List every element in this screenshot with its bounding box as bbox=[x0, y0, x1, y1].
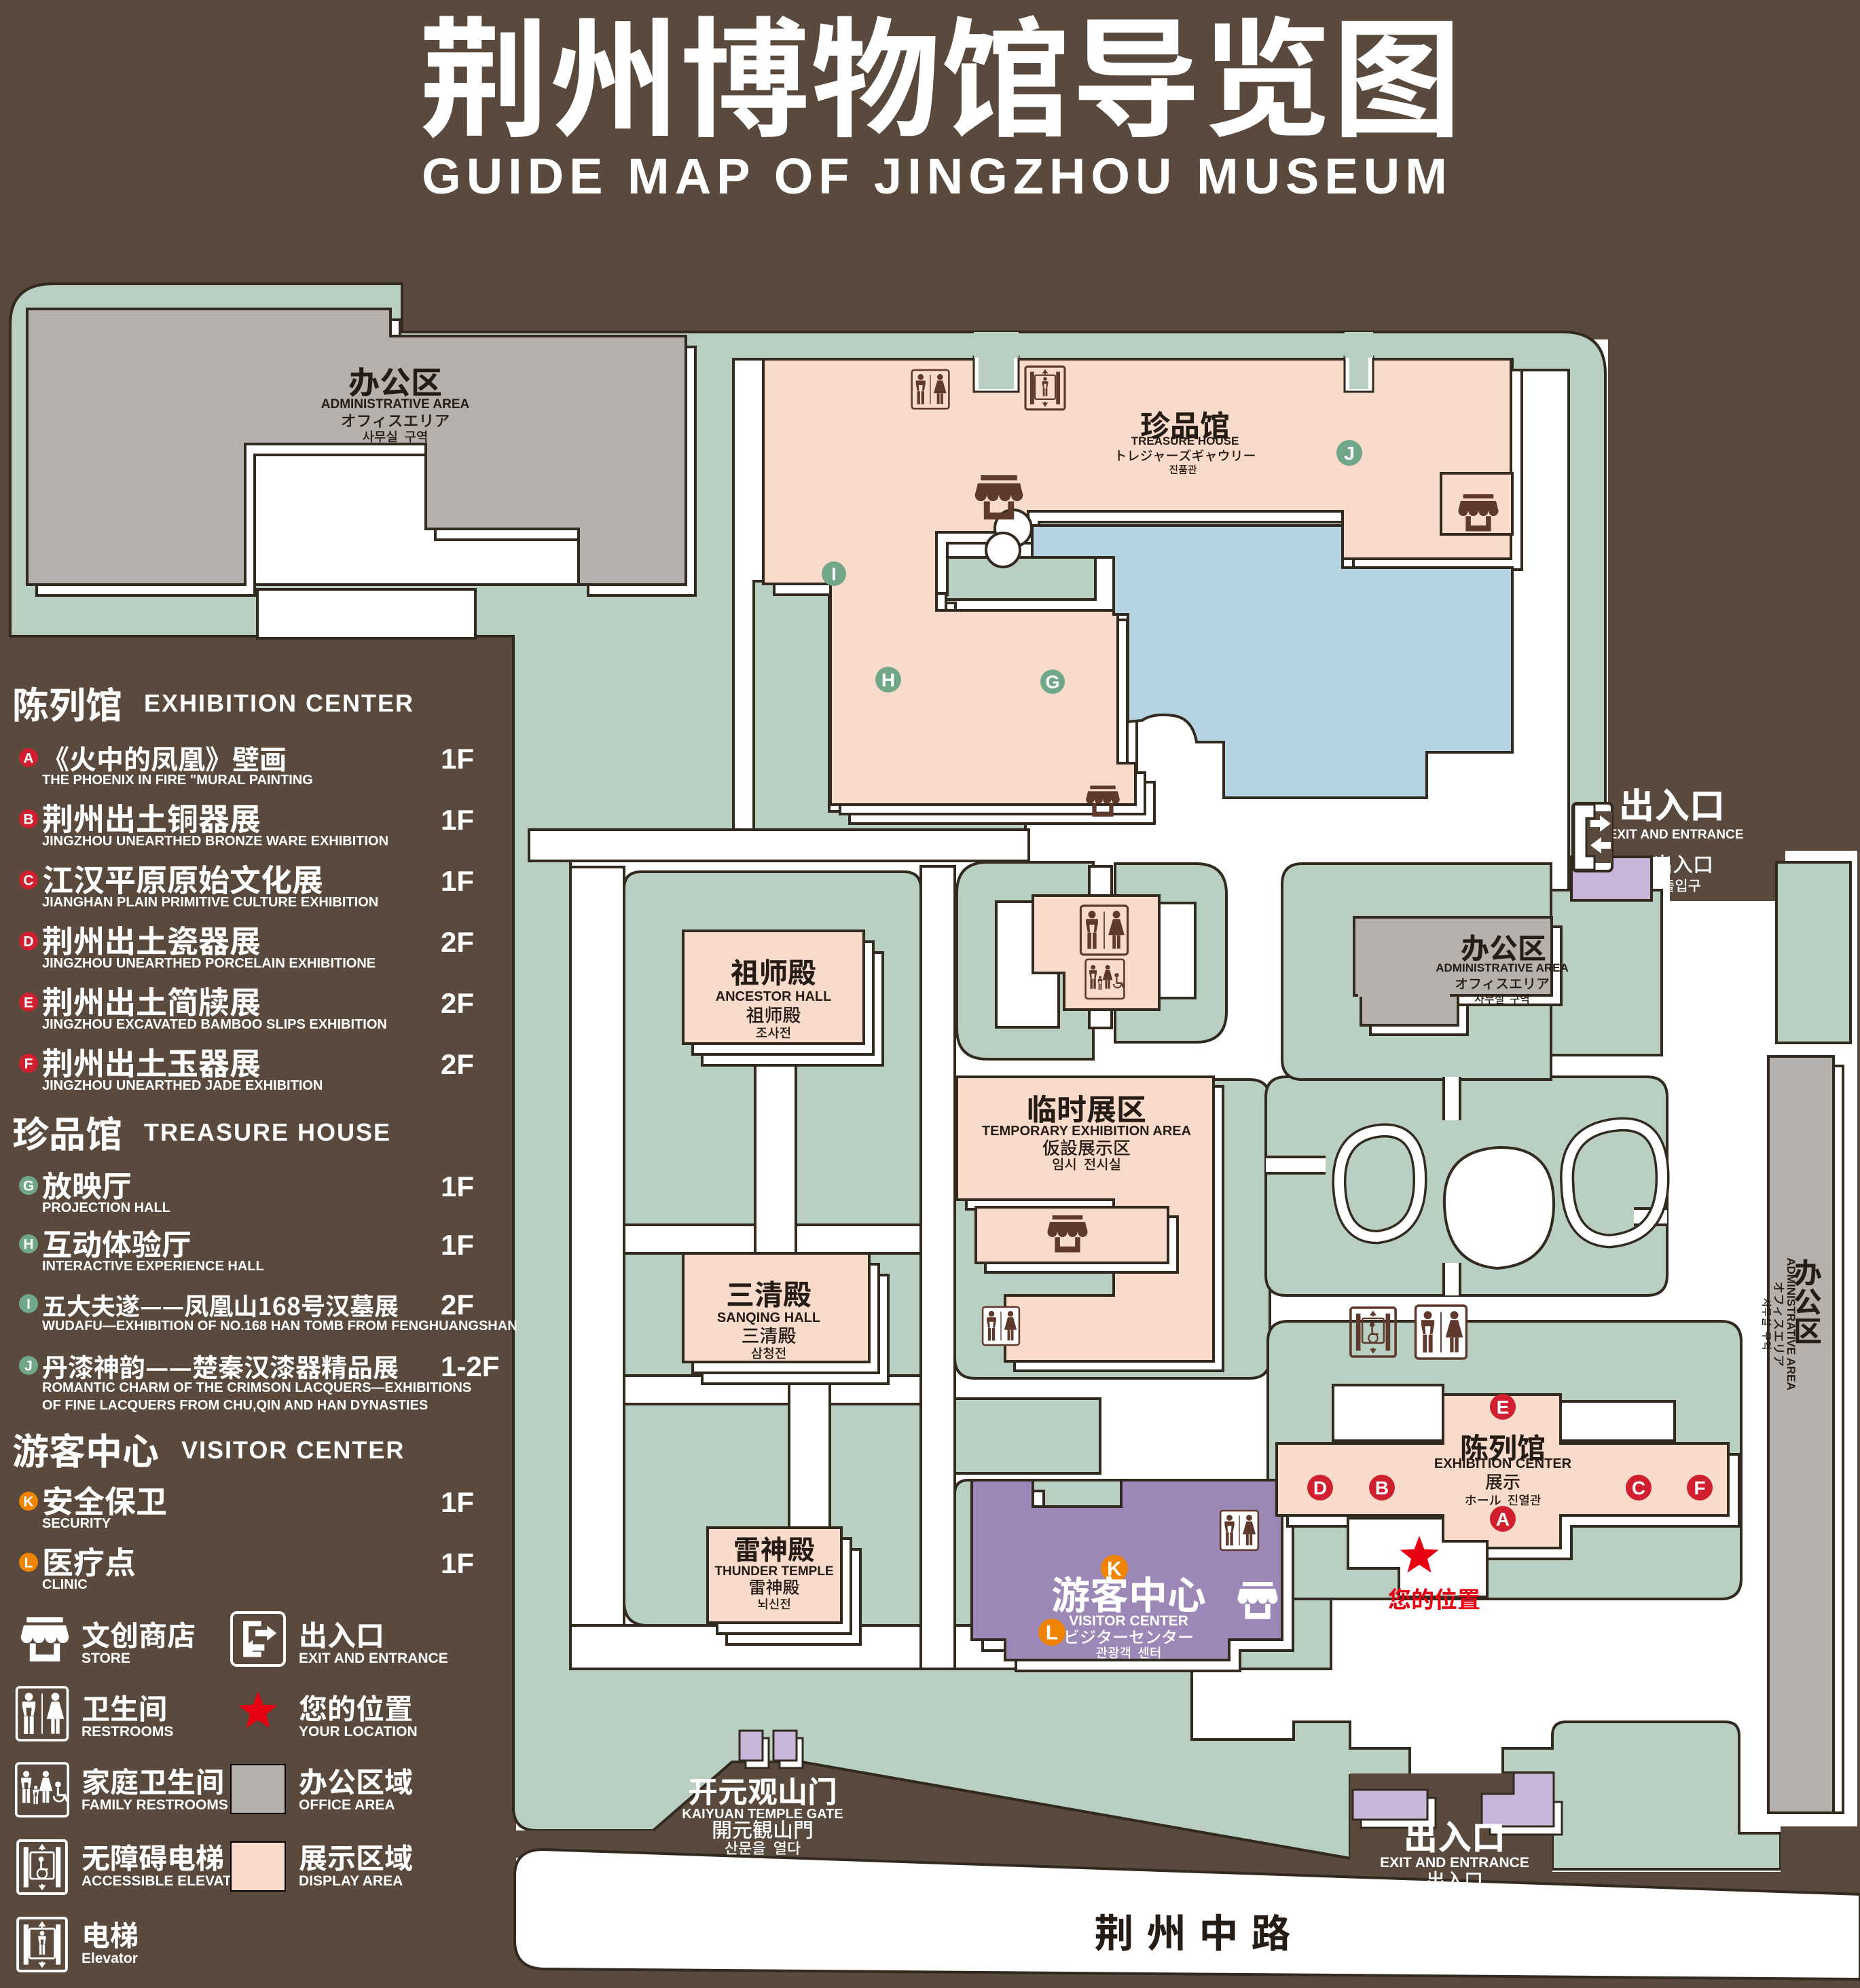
svg-text:I: I bbox=[26, 1296, 31, 1312]
svg-text:TREASURE HOUSE: TREASURE HOUSE bbox=[1131, 435, 1239, 447]
svg-text:FAMILY RESTROOMS: FAMILY RESTROOMS bbox=[81, 1797, 228, 1813]
svg-text:1F: 1F bbox=[441, 1171, 474, 1202]
svg-text:SANQING HALL: SANQING HALL bbox=[717, 1310, 820, 1325]
svg-text:CLINIC: CLINIC bbox=[42, 1577, 88, 1592]
svg-text:EXIT AND ENTRANCE: EXIT AND ENTRANCE bbox=[299, 1651, 448, 1666]
svg-text:ADMINISTRATIVE AREA: ADMINISTRATIVE AREA bbox=[321, 397, 470, 411]
svg-text:JINGZHOU UNEARTHED PORCELAIN E: JINGZHOU UNEARTHED PORCELAIN EXHIBITIONE bbox=[42, 956, 376, 971]
svg-text:EXIT AND ENTRANCE: EXIT AND ENTRANCE bbox=[1609, 828, 1744, 842]
svg-text:G: G bbox=[23, 1178, 34, 1194]
svg-text:SECURITY: SECURITY bbox=[42, 1516, 111, 1531]
svg-text:2F: 2F bbox=[441, 1289, 474, 1321]
svg-text:F: F bbox=[1694, 1477, 1705, 1498]
svg-text:I: I bbox=[831, 564, 837, 584]
svg-text:OF FINE LACQUERS FROM CHU,QIN: OF FINE LACQUERS FROM CHU,QIN AND HAN DY… bbox=[42, 1398, 428, 1413]
svg-text:D: D bbox=[23, 934, 33, 949]
svg-text:VISITOR CENTER: VISITOR CENTER bbox=[1069, 1613, 1188, 1629]
svg-text:YOUR LOCATION: YOUR LOCATION bbox=[299, 1724, 418, 1739]
svg-text:EXIT AND ENTRANCE: EXIT AND ENTRANCE bbox=[1380, 1855, 1529, 1871]
svg-text:ACCESSIBLE ELEVATOR: ACCESSIBLE ELEVATOR bbox=[81, 1873, 253, 1889]
svg-text:EXHIBITION CENTER: EXHIBITION CENTER bbox=[1434, 1456, 1572, 1471]
svg-text:C: C bbox=[1632, 1477, 1645, 1498]
svg-text:ADMINISTRATIVE AREA: ADMINISTRATIVE AREA bbox=[1785, 1257, 1798, 1391]
svg-text:WUDAFU—EXHIBITION OF NO.168 HA: WUDAFU—EXHIBITION OF NO.168 HAN TOMB FRO… bbox=[42, 1319, 517, 1333]
svg-text:E: E bbox=[24, 995, 33, 1010]
svg-text:1F: 1F bbox=[441, 743, 474, 775]
svg-text:VISITOR CENTER: VISITOR CENTER bbox=[181, 1436, 405, 1464]
svg-text:1F: 1F bbox=[441, 1547, 474, 1579]
svg-text:1-2F: 1-2F bbox=[441, 1350, 499, 1382]
svg-text:K: K bbox=[23, 1494, 33, 1509]
svg-text:F: F bbox=[24, 1056, 33, 1071]
svg-text:H: H bbox=[881, 669, 895, 691]
svg-text:J: J bbox=[24, 1358, 33, 1374]
svg-text:THUNDER TEMPLE: THUNDER TEMPLE bbox=[714, 1564, 833, 1579]
svg-text:1F: 1F bbox=[441, 1486, 474, 1518]
svg-text:RESTROOMS: RESTROOMS bbox=[81, 1724, 173, 1739]
svg-text:B: B bbox=[23, 811, 33, 827]
svg-text:INTERACTIVE EXPERIENCE HALL: INTERACTIVE EXPERIENCE HALL bbox=[42, 1259, 264, 1274]
svg-text:A: A bbox=[23, 750, 33, 766]
svg-text:TEMPORARY EXHIBITION AREA: TEMPORARY EXHIBITION AREA bbox=[982, 1124, 1191, 1139]
svg-text:B: B bbox=[1375, 1477, 1389, 1498]
svg-text:TREASURE HOUSE: TREASURE HOUSE bbox=[144, 1118, 391, 1146]
svg-text:E: E bbox=[1497, 1397, 1510, 1418]
svg-text:1F: 1F bbox=[441, 1229, 474, 1261]
svg-text:DISPLAY AREA: DISPLAY AREA bbox=[299, 1873, 403, 1889]
svg-text:Elevator: Elevator bbox=[81, 1951, 138, 1966]
svg-text:2F: 2F bbox=[441, 926, 474, 958]
svg-text:C: C bbox=[23, 872, 33, 888]
svg-text:KAIYUAN TEMPLE GATE: KAIYUAN TEMPLE GATE bbox=[682, 1807, 843, 1822]
svg-text:JINGZHOU UNEARTHED BRONZE WARE: JINGZHOU UNEARTHED BRONZE WARE EXHIBITIO… bbox=[42, 834, 388, 849]
svg-text:JINGZHOU EXCAVATED BAMBOO SLIP: JINGZHOU EXCAVATED BAMBOO SLIPS EXHIBITI… bbox=[42, 1017, 387, 1032]
svg-text:L: L bbox=[1046, 1622, 1058, 1644]
svg-text:H: H bbox=[23, 1236, 33, 1252]
svg-text:A: A bbox=[1496, 1509, 1510, 1530]
svg-text:EXHIBITION CENTER: EXHIBITION CENTER bbox=[144, 689, 414, 717]
svg-text:STORE: STORE bbox=[81, 1651, 130, 1666]
svg-text:1F: 1F bbox=[441, 865, 474, 897]
svg-text:2F: 2F bbox=[441, 1048, 474, 1080]
svg-text:2F: 2F bbox=[441, 987, 474, 1019]
svg-text:JIANGHAN PLAIN PRIMITIVE CULTU: JIANGHAN PLAIN PRIMITIVE CULTURE EXHIBIT… bbox=[42, 895, 378, 910]
svg-text:1F: 1F bbox=[441, 804, 474, 836]
svg-text:L: L bbox=[24, 1555, 33, 1570]
svg-text:THE PHOENIX IN FIRE "MURAL PAI: THE PHOENIX IN FIRE "MURAL PAINTING bbox=[42, 773, 313, 788]
svg-text:PROJECTION HALL: PROJECTION HALL bbox=[42, 1200, 170, 1215]
svg-text:ANCESTOR HALL: ANCESTOR HALL bbox=[716, 989, 832, 1004]
svg-text:ADMINISTRATIVE AREA: ADMINISTRATIVE AREA bbox=[1436, 961, 1569, 974]
svg-text:G: G bbox=[1045, 671, 1059, 692]
svg-text:ROMANTIC CHARM OF THE CRIMSON: ROMANTIC CHARM OF THE CRIMSON LACQUERS—E… bbox=[42, 1380, 471, 1395]
svg-text:D: D bbox=[1313, 1477, 1327, 1498]
svg-text:JINGZHOU UNEARTHED JADE EXHIBI: JINGZHOU UNEARTHED JADE EXHIBITION bbox=[42, 1078, 323, 1093]
svg-text:GUIDE MAP OF JINGZHOU MUSEUM: GUIDE MAP OF JINGZHOU MUSEUM bbox=[422, 148, 1453, 204]
svg-text:J: J bbox=[1344, 443, 1355, 464]
svg-text:OFFICE AREA: OFFICE AREA bbox=[299, 1797, 395, 1813]
